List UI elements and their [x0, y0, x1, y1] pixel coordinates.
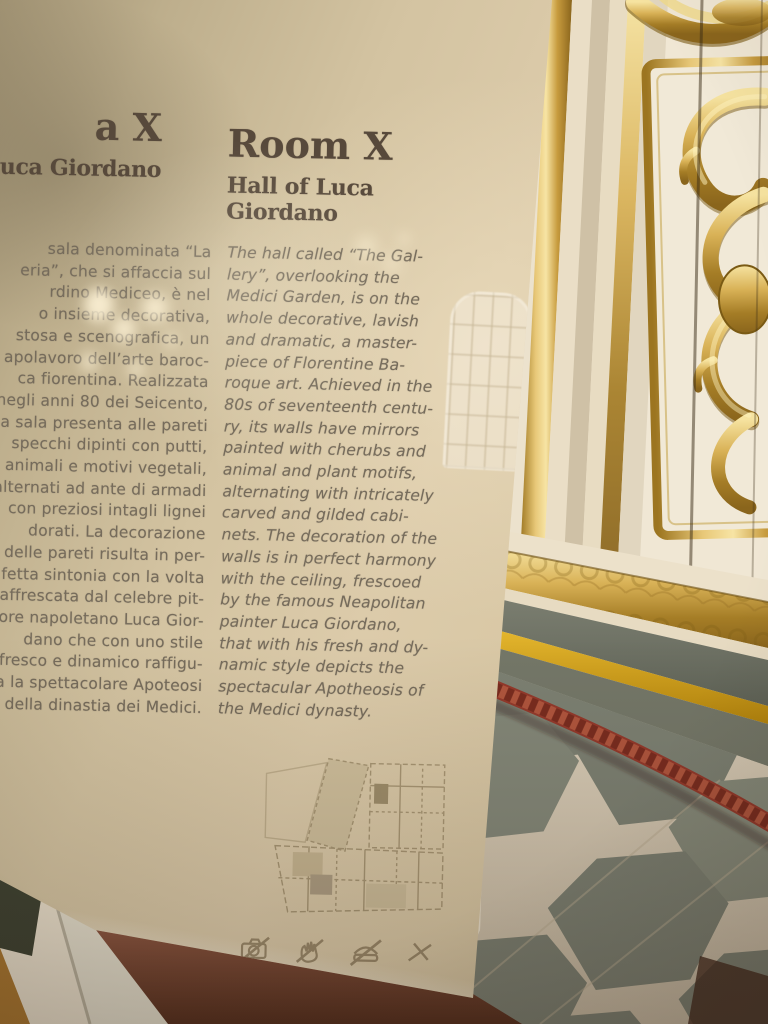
italian-subtitle: Luca Giordano — [0, 152, 161, 183]
panel-content: a X Luca Giordano sala denominata “La er… — [0, 0, 563, 1024]
gilded-door-panel — [646, 60, 768, 536]
no-touching-icon — [293, 935, 328, 966]
italian-title: a X — [0, 101, 163, 150]
floor-plan — [248, 753, 451, 923]
english-subtitle: Hall of Luca Giordano — [226, 172, 477, 229]
english-body-text: The hall called “The Gal- lery”, overloo… — [218, 242, 474, 725]
english-title: Room X — [227, 120, 478, 170]
museum-photo: a X Luca Giordano sala denominata “La er… — [0, 0, 768, 1024]
prohibition-cross-icon — [405, 938, 436, 967]
italian-body-text: sala denominata “La eria”, che si affacc… — [0, 237, 212, 720]
no-food-drink-icon — [343, 935, 390, 968]
